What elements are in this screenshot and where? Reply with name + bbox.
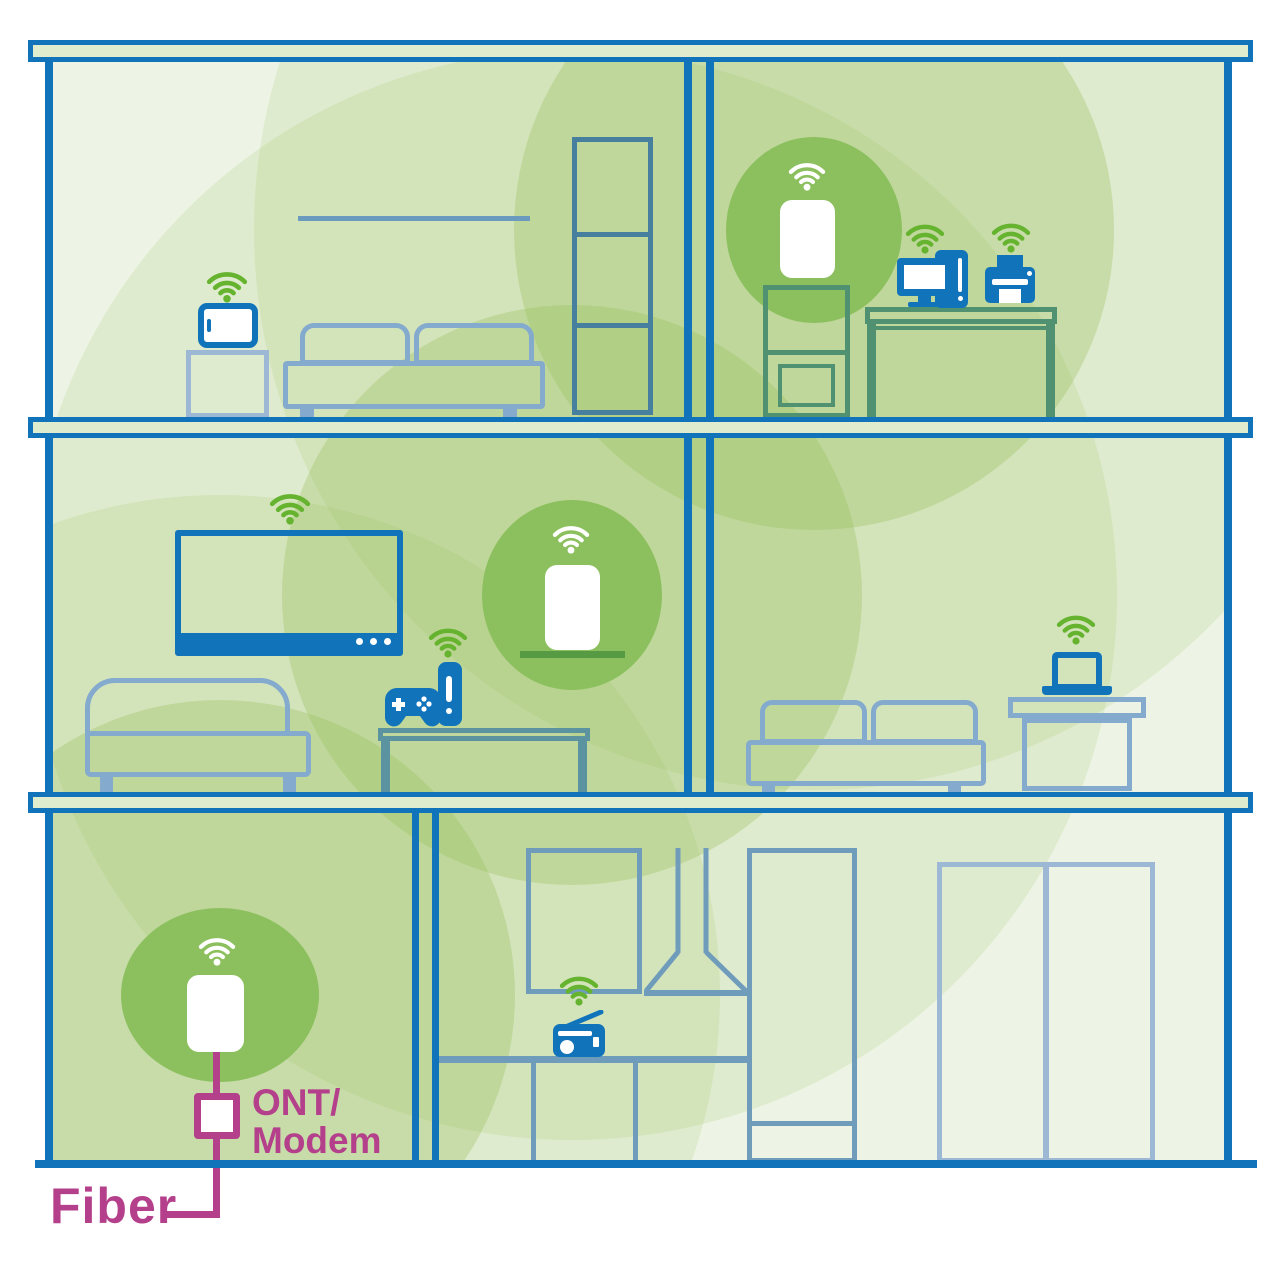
middle-floor-partition-left	[684, 438, 692, 792]
kitchen-base-divider-1	[531, 1063, 536, 1163]
ont-modem-label: ONT/ Modem	[252, 1084, 382, 1160]
bed-base	[283, 361, 545, 409]
router-middle-wifi-icon	[545, 516, 597, 554]
mesh-router-middle	[545, 565, 600, 650]
tv-icon	[175, 530, 403, 656]
middle-floor-left-wall	[45, 438, 53, 792]
mesh-router-top	[780, 200, 835, 278]
chaise-leg-right	[283, 777, 296, 792]
pc-monitor-icon	[897, 258, 952, 296]
chaise-sofa-base	[85, 731, 311, 777]
router-top-wifi-icon	[782, 153, 832, 191]
ground-floor-partition-left	[412, 813, 419, 1160]
top-floor-right-wall	[1224, 62, 1232, 418]
top-floor-partition-right	[706, 62, 714, 418]
router-middle-shelf	[520, 651, 625, 658]
laptop-icon	[1042, 652, 1112, 695]
top-slab	[28, 40, 1253, 62]
middle-floor-partition-right	[706, 438, 714, 792]
nightstand	[186, 350, 269, 418]
ground-floor-right-wall	[1224, 813, 1232, 1160]
bed-pillow-right	[414, 323, 534, 365]
tv-wifi-icon	[262, 483, 318, 525]
radio-icon	[553, 1010, 609, 1057]
mesh-router-ground	[187, 975, 244, 1052]
desk	[865, 307, 1057, 418]
sofa-cushion-right	[871, 700, 978, 744]
printer-wifi-icon	[984, 213, 1038, 253]
kitchen-countertop	[436, 1056, 747, 1063]
router-ground-wifi-icon	[191, 928, 243, 966]
tv-stand-leg-left	[381, 741, 390, 792]
middle-slab	[28, 417, 1253, 438]
picture-rail	[298, 216, 530, 221]
kitchen-tall-cabinet	[747, 848, 857, 1163]
drawer-pedestal	[763, 285, 850, 418]
laptop-wifi-icon	[1049, 605, 1103, 645]
pc-wifi-icon	[898, 214, 952, 254]
ont-label-line1: ONT/	[252, 1084, 382, 1122]
ground-floor-left-wall	[45, 813, 53, 1160]
pc-monitor-base	[908, 302, 941, 307]
chaise-leg-left	[100, 777, 113, 792]
extractor-hood	[640, 845, 752, 999]
ont-label-line2: Modem	[252, 1122, 382, 1160]
side-table-body	[1022, 718, 1132, 791]
tv-stand-leg-right	[578, 741, 587, 792]
sofa-cushion-left	[760, 700, 867, 744]
sofa-base	[746, 740, 986, 786]
radio-wifi-icon	[552, 966, 606, 1006]
ground-line	[35, 1160, 1257, 1168]
ground-floor-partition-right	[432, 813, 439, 1160]
bookshelf	[572, 137, 653, 415]
console-wifi-icon	[421, 618, 475, 658]
chaise-sofa-back	[85, 678, 290, 736]
ont-modem-box	[194, 1093, 240, 1139]
fiber-label: Fiber	[50, 1177, 177, 1235]
printer-icon	[985, 255, 1035, 303]
side-table-top	[1008, 697, 1146, 718]
top-floor-left-wall	[45, 62, 53, 418]
double-wardrobe	[937, 862, 1155, 1163]
kitchen-base-divider-2	[633, 1063, 638, 1163]
game-controller-icon	[383, 686, 443, 730]
tablet-icon	[198, 303, 258, 348]
mesh-wifi-house-diagram: ONT/ Modem Fiber	[0, 0, 1280, 1280]
middle-floor-right-wall	[1224, 438, 1232, 792]
bed-pillow-left	[300, 323, 410, 365]
tablet-wifi-icon	[200, 261, 254, 303]
top-floor-partition-left	[684, 62, 692, 418]
ground-slab	[28, 792, 1253, 813]
